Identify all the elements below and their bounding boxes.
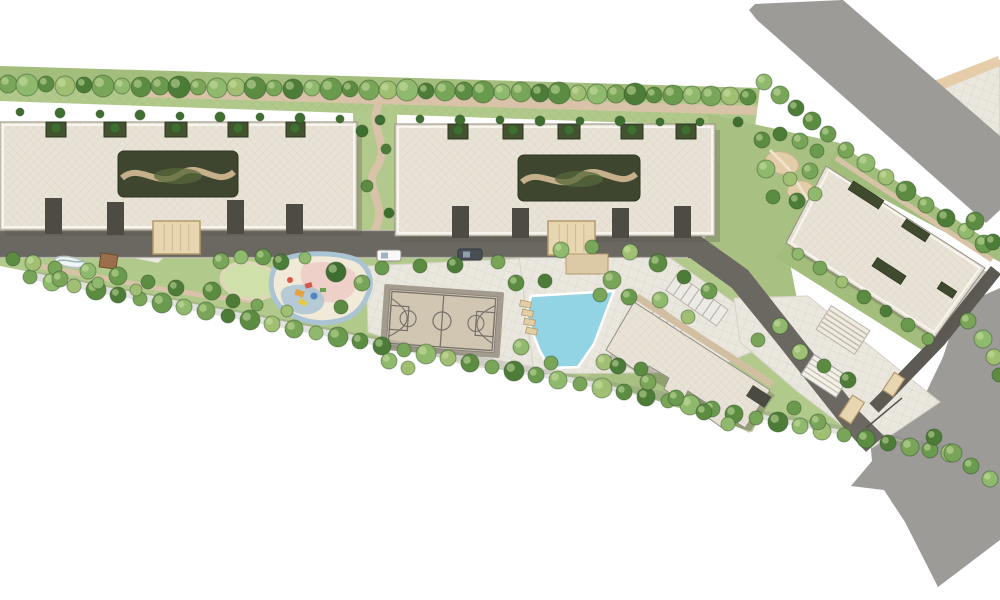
tree (701, 283, 717, 299)
tree (23, 270, 37, 284)
tree (528, 367, 544, 383)
tree (603, 271, 621, 289)
tree-highlight (419, 347, 427, 355)
tree (336, 115, 344, 123)
tree-highlight (275, 256, 282, 263)
tree (592, 378, 612, 398)
tree (622, 244, 638, 260)
tree-highlight (642, 376, 649, 383)
tree (375, 261, 389, 275)
tree (151, 77, 169, 95)
tree-highlight (178, 301, 185, 308)
tree (757, 160, 775, 178)
tree (455, 115, 465, 125)
tree (447, 257, 463, 273)
tree (637, 388, 655, 406)
tree-highlight (507, 364, 515, 372)
tree-highlight (457, 84, 465, 92)
tree-highlight (805, 114, 813, 122)
tree-highlight (530, 369, 537, 376)
tree-highlight (654, 294, 661, 301)
tree (538, 274, 552, 288)
tree-highlight (112, 289, 119, 296)
tree (627, 125, 637, 135)
tree (52, 271, 68, 287)
tree (299, 252, 311, 264)
tree-highlight (618, 386, 625, 393)
tree (251, 299, 263, 311)
tree-highlight (804, 165, 811, 172)
tree-highlight (266, 318, 273, 325)
tree-highlight (859, 156, 867, 164)
tree (792, 248, 804, 260)
play-equipment-5 (287, 277, 293, 283)
tree (496, 116, 504, 124)
tree-highlight (210, 81, 218, 89)
tree (683, 86, 701, 104)
tree (418, 83, 434, 99)
tree (817, 359, 831, 373)
tree (375, 115, 385, 125)
tree (96, 110, 104, 118)
tree-highlight (595, 381, 603, 389)
tree (413, 259, 427, 273)
tree-highlight (95, 78, 104, 87)
tree (373, 337, 391, 355)
tree (273, 254, 289, 270)
pergola (99, 253, 118, 269)
tree-highlight (381, 83, 389, 91)
tree (342, 81, 358, 97)
tree-highlight (623, 291, 630, 298)
tree (701, 86, 721, 106)
tree (16, 108, 24, 116)
tree (285, 320, 303, 338)
tree (963, 458, 979, 474)
tree (656, 118, 664, 126)
tree (751, 333, 765, 347)
tree-highlight (977, 237, 985, 245)
tree (808, 187, 822, 201)
building2-stair-tab-3 (612, 208, 629, 238)
tree-highlight (514, 85, 522, 93)
tree-highlight (773, 88, 781, 96)
tree (461, 354, 479, 372)
tree-highlight (331, 330, 339, 338)
tree-highlight (111, 269, 119, 277)
tree (455, 82, 473, 100)
building2-porch (566, 254, 608, 274)
tree (787, 401, 801, 415)
tree-highlight (54, 273, 61, 280)
tree-highlight (153, 79, 161, 87)
tree-highlight (383, 355, 390, 362)
tree (504, 361, 524, 381)
tree-highlight (1, 77, 9, 85)
tree (379, 81, 397, 99)
tree (652, 292, 668, 308)
tree (813, 261, 827, 275)
tree (966, 212, 984, 230)
tree (788, 100, 804, 116)
tree (320, 78, 342, 100)
tree (549, 371, 567, 389)
tree (221, 309, 235, 323)
tree-highlight (928, 431, 935, 438)
tree-highlight (329, 265, 337, 273)
tree (266, 80, 282, 96)
tree-highlight (463, 356, 471, 364)
tree (401, 361, 415, 375)
tree-highlight (475, 84, 484, 93)
tree (810, 414, 826, 430)
tree-highlight (82, 265, 89, 272)
tree-highlight (515, 341, 522, 348)
tree (749, 411, 763, 425)
tree (168, 280, 184, 296)
tree-highlight (344, 83, 351, 90)
tree-highlight (375, 339, 383, 347)
tree (352, 333, 368, 349)
building2-stair-tab-1 (452, 206, 469, 238)
tree-highlight (627, 86, 636, 95)
tree (207, 78, 227, 98)
tree (593, 288, 607, 302)
tree (131, 77, 151, 97)
tree (621, 289, 637, 305)
tree (531, 84, 549, 102)
tree (6, 252, 20, 266)
tree-highlight (965, 460, 972, 467)
tree-highlight (155, 296, 163, 304)
tree (359, 80, 379, 100)
tree (110, 287, 126, 303)
tree (309, 326, 323, 340)
tree (937, 209, 955, 227)
tree (880, 305, 892, 317)
tree (152, 293, 172, 313)
building1-stair-tab-3 (227, 200, 244, 234)
tree-highlight (199, 304, 207, 312)
tree (792, 418, 808, 434)
tree (918, 197, 934, 213)
tree (397, 343, 411, 357)
tree-highlight (624, 246, 631, 253)
tree-highlight (924, 444, 931, 451)
tree (802, 163, 818, 179)
tree-highlight (555, 244, 562, 251)
tree (55, 108, 65, 118)
tree (771, 86, 789, 104)
tree (110, 123, 120, 133)
building1-courtyard-green (154, 168, 202, 184)
tree (810, 144, 824, 158)
tree-highlight (533, 86, 541, 94)
car-white (377, 250, 401, 261)
tree (610, 358, 626, 374)
tree (256, 113, 264, 121)
tree (696, 404, 712, 420)
tree-highlight (880, 171, 887, 178)
tree (640, 374, 656, 390)
tree (176, 299, 192, 315)
tree-highlight (791, 195, 798, 202)
tree (511, 82, 531, 102)
tree (384, 208, 394, 218)
tree (381, 353, 397, 369)
tree (576, 117, 584, 125)
tree (974, 330, 992, 348)
tree (472, 81, 494, 103)
tree (197, 302, 215, 320)
tree (783, 172, 797, 186)
tree (485, 360, 499, 374)
tree-highlight (758, 76, 765, 83)
tree (772, 318, 788, 334)
tree-highlight (882, 437, 889, 444)
tree (244, 77, 266, 99)
tree (878, 169, 894, 185)
tree-highlight (976, 332, 984, 340)
tree-highlight (287, 322, 295, 330)
tree (264, 316, 280, 332)
tree-highlight (920, 199, 927, 206)
tree (396, 79, 418, 101)
tree (587, 84, 607, 104)
tree-highlight (229, 80, 237, 88)
building2-courtyard-green (555, 171, 603, 187)
tree (416, 344, 436, 364)
tree (663, 85, 683, 105)
tree-highlight (987, 236, 994, 243)
tree (171, 123, 181, 133)
tree-highlight (609, 87, 617, 95)
tree (646, 87, 662, 103)
tree (696, 118, 704, 126)
tree-highlight (685, 88, 693, 96)
tree-highlight (759, 162, 767, 170)
tree-highlight (205, 284, 213, 292)
tree-highlight (496, 86, 503, 93)
tree (836, 276, 848, 288)
tree-highlight (988, 351, 995, 358)
tree (960, 313, 976, 329)
tree (255, 249, 271, 265)
tree-highlight (598, 356, 605, 363)
tree (354, 275, 370, 291)
tree (677, 270, 691, 284)
tree-highlight (134, 80, 142, 88)
play-equipment-3 (311, 293, 318, 300)
tree-highlight (651, 256, 659, 264)
tree-highlight (704, 89, 712, 97)
tree-highlight (551, 373, 559, 381)
tree-highlight (899, 184, 907, 192)
tree-highlight (822, 128, 829, 135)
tree (508, 125, 518, 135)
tree (114, 78, 130, 94)
tree (896, 181, 916, 201)
tree (203, 282, 221, 300)
tree (838, 142, 854, 158)
tree (649, 254, 667, 272)
tree (304, 80, 320, 96)
tree (544, 356, 558, 370)
tree-highlight (840, 144, 847, 151)
tree (607, 85, 625, 103)
tree-highlight (78, 79, 85, 86)
tree-highlight (723, 89, 731, 97)
tree (295, 113, 305, 123)
tree-highlight (399, 82, 408, 91)
tree-highlight (605, 273, 613, 281)
tree (326, 262, 346, 282)
tree (176, 112, 184, 120)
tree (25, 255, 41, 271)
tree-highlight (192, 81, 199, 88)
tree (668, 390, 684, 406)
tree (901, 318, 915, 332)
tree-highlight (703, 285, 710, 292)
tree (820, 126, 836, 142)
car-dark-window (463, 252, 470, 258)
tree-highlight (170, 282, 177, 289)
tree (135, 110, 145, 120)
tree (16, 74, 38, 96)
tree (857, 154, 875, 172)
tree (740, 89, 756, 105)
tree (435, 81, 455, 101)
tree (328, 327, 348, 347)
tree (109, 267, 127, 285)
tree-highlight (356, 277, 363, 284)
scene-layers (0, 0, 1000, 587)
tree-highlight (794, 420, 801, 427)
tree (880, 435, 896, 451)
building1-stair-tab-4 (286, 204, 303, 234)
tree-highlight (666, 88, 674, 96)
tree (615, 116, 625, 126)
tree (837, 428, 851, 442)
tree (573, 377, 587, 391)
tree-highlight (257, 251, 264, 258)
tree-highlight (215, 255, 222, 262)
building1-stair-tab-1 (45, 198, 62, 234)
tree (754, 132, 770, 148)
tree (570, 85, 586, 101)
tree (616, 384, 632, 400)
tree-highlight (960, 225, 967, 232)
tree (80, 263, 96, 279)
tree (596, 354, 612, 370)
building2-stair-tab-4 (674, 206, 691, 238)
tree (926, 429, 942, 445)
tree-highlight (116, 80, 123, 87)
tree-highlight (247, 80, 256, 89)
tree (130, 284, 142, 296)
tree (453, 125, 463, 135)
tree (190, 79, 206, 95)
tree (681, 310, 695, 324)
tree (240, 310, 260, 330)
tree-highlight (171, 79, 180, 88)
tree-highlight (449, 259, 456, 266)
tree (840, 372, 856, 388)
tree-highlight (639, 390, 647, 398)
tree-highlight (790, 102, 797, 109)
tree (281, 305, 293, 317)
tree-highlight (812, 416, 819, 423)
tree-highlight (268, 82, 275, 89)
tree-highlight (612, 360, 619, 367)
tree-highlight (648, 89, 655, 96)
tree (513, 339, 529, 355)
tree-highlight (794, 346, 801, 353)
tree (624, 83, 646, 105)
tree (789, 193, 805, 209)
tree (381, 144, 391, 154)
tree-highlight (842, 374, 849, 381)
tree (982, 471, 998, 487)
tree (585, 240, 599, 254)
tree (0, 75, 17, 93)
tree-highlight (756, 134, 763, 141)
tree (681, 125, 691, 135)
car-white-window (381, 253, 388, 259)
tree-highlight (362, 83, 370, 91)
tree (361, 180, 373, 192)
tree (756, 74, 772, 90)
tree (857, 290, 871, 304)
tree-highlight (903, 440, 911, 448)
tree (535, 116, 545, 126)
tree-highlight (286, 82, 294, 90)
tree (548, 82, 570, 104)
tree-highlight (698, 406, 705, 413)
tree (901, 438, 919, 456)
tree (168, 76, 190, 98)
tree (38, 76, 54, 92)
tree (226, 294, 240, 308)
tree (440, 350, 456, 366)
tree (491, 255, 505, 269)
tree-highlight (438, 84, 446, 92)
tree-highlight (984, 473, 991, 480)
tree (92, 75, 114, 97)
site-plan-canvas (0, 0, 1000, 600)
tree (234, 250, 248, 264)
tree-highlight (670, 392, 677, 399)
tree (334, 300, 348, 314)
tree-highlight (306, 82, 313, 89)
tree-highlight (939, 211, 947, 219)
tree (213, 253, 229, 269)
tree (233, 123, 243, 133)
tree (922, 333, 934, 345)
tree (227, 78, 245, 96)
tree-highlight (58, 79, 66, 87)
tree (92, 277, 104, 289)
tree-highlight (354, 335, 361, 342)
tree (773, 127, 787, 141)
building2-stair-tab-2 (512, 208, 529, 238)
tree (494, 84, 510, 100)
tree-highlight (323, 81, 332, 90)
tree-highlight (19, 77, 28, 86)
tree (944, 444, 962, 462)
tree-highlight (742, 91, 749, 98)
tree-highlight (442, 352, 449, 359)
